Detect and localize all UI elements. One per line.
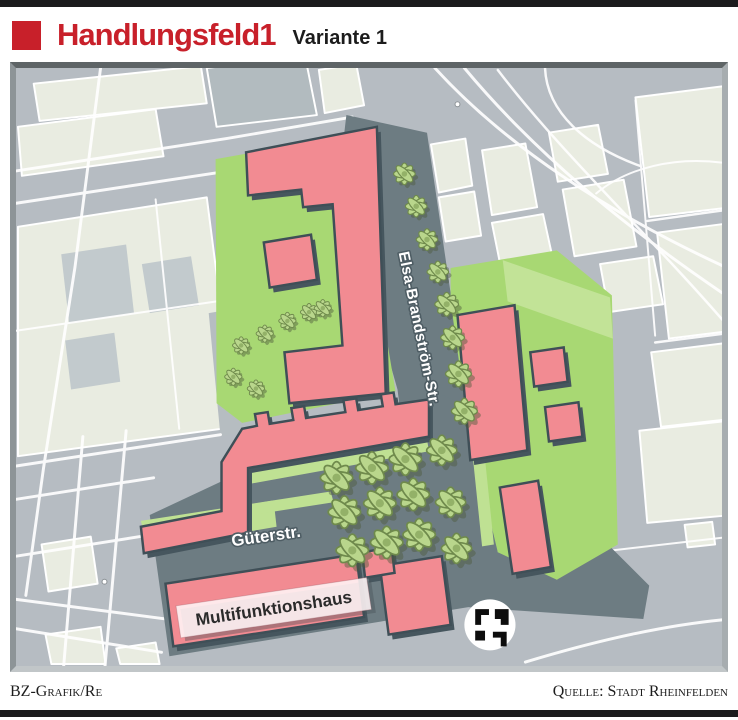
kicker-square-icon [12,21,41,50]
kicker-title: Handlungsfeld1 [57,17,276,53]
top-rule [0,0,738,7]
footer: BZ-Grafik/Re Quelle: Stadt Rheinfelden [10,683,728,701]
newspaper-graphic: Handlungsfeld1 Variante 1 [0,0,738,720]
variant-subtitle: Variante 1 [293,20,388,50]
source-text: Quelle: Stadt Rheinfelden [553,683,728,701]
city-plan-map: Elsa-Brandström-Str. Güterstr. Multifunk… [16,68,722,666]
bottom-rule [0,710,738,717]
header: Handlungsfeld1 Variante 1 [12,17,387,53]
building-courtyard-square [264,235,317,288]
building-east-square-1 [530,347,567,386]
credit-text: BZ-Grafik/Re [10,683,102,701]
building-east-square-2 [545,402,582,441]
stadt-rheinfelden-logo-icon [464,599,515,650]
map-frame: Elsa-Brandström-Str. Güterstr. Multifunk… [10,62,728,672]
